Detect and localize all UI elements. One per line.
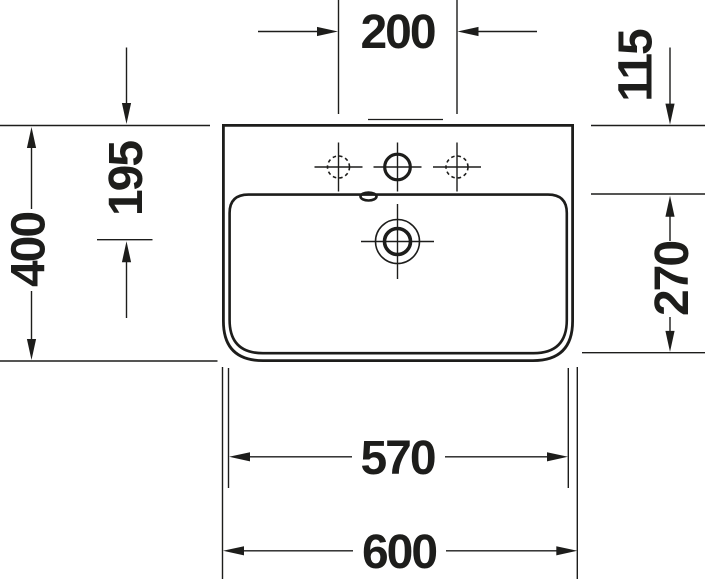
arrowhead-right-icon [556, 546, 577, 555]
arrowhead-left-icon [223, 546, 244, 555]
dim-label-inner-width: 570 [360, 432, 434, 485]
arrowhead-left-icon [458, 27, 479, 36]
dimension-labels-group: 200 115 195 400 270 570 600 [3, 6, 700, 579]
arrowhead-up-icon [27, 127, 36, 148]
arrowhead-down-icon [665, 104, 674, 125]
extension-lines-group [0, 0, 705, 579]
drain-group [361, 204, 434, 279]
arrowhead-left-icon [229, 452, 250, 461]
arrowhead-right-icon [547, 452, 568, 461]
dim-label-rim-to-inner-basin: 115 [610, 29, 663, 102]
technical-drawing-canvas: 200 115 195 400 270 570 600 [0, 0, 705, 584]
overflow-slot-icon [361, 193, 377, 201]
tap-hole-crosshairs [315, 143, 482, 192]
tap-holes-group [315, 143, 482, 192]
dim-label-inner-basin-depth: 270 [646, 242, 699, 316]
dim-label-overall-width: 600 [362, 526, 436, 579]
arrowhead-down-icon [27, 339, 36, 360]
arrowhead-right-icon [317, 27, 338, 36]
technical-drawing-page: 200 115 195 400 270 570 600 [0, 0, 705, 584]
arrowhead-down-icon [122, 103, 131, 124]
arrowhead-up-icon [122, 241, 131, 262]
arrowhead-up-icon [665, 196, 674, 217]
dim-label-tap-hole-spacing: 200 [360, 6, 434, 59]
dim-label-rim-to-drain-center: 195 [100, 141, 153, 216]
inner-basin-edge [230, 195, 567, 354]
arrowhead-down-icon [665, 331, 674, 352]
dim-label-overall-depth: 400 [3, 213, 56, 287]
